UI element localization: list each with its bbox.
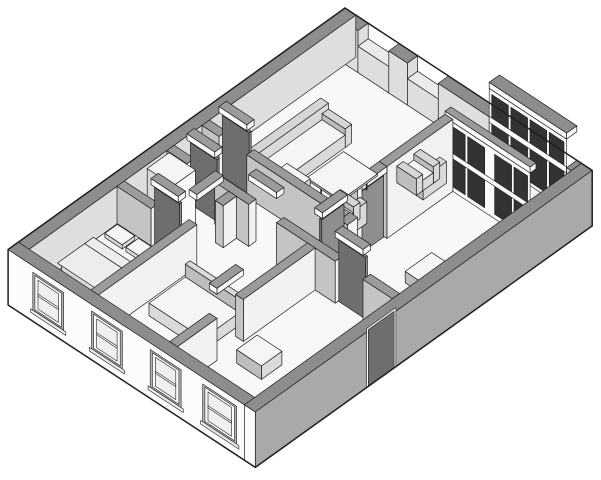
isometric-floor-plan-rendering — [0, 0, 601, 480]
floor-plan-view — [0, 0, 601, 480]
left-column-wall-1 — [215, 191, 236, 248]
